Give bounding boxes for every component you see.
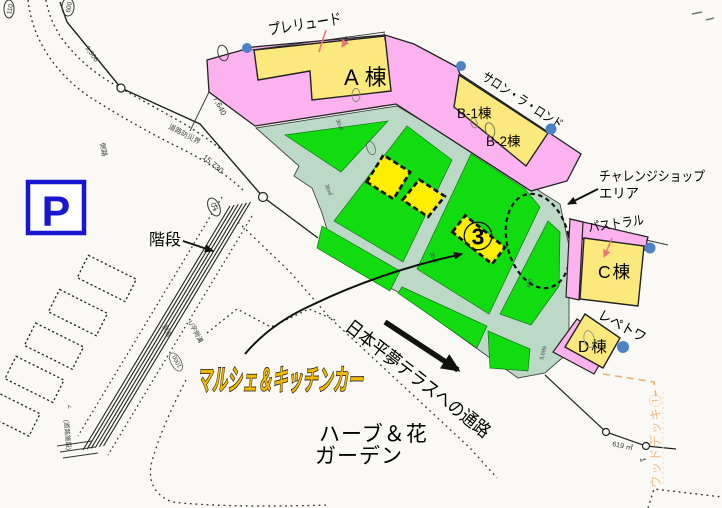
svg-text:C棟: C棟: [598, 262, 632, 282]
svg-text:ガーデン: ガーデン: [315, 445, 403, 468]
svg-text:P: P: [42, 188, 71, 236]
svg-text:チャレンジショップ: チャレンジショップ: [599, 169, 705, 184]
svg-text:A棟: A棟: [344, 65, 393, 90]
svg-text:D棟: D棟: [578, 338, 609, 356]
svg-text:マルシェ＆キッチンカー: マルシェ＆キッチンカー: [197, 365, 364, 397]
svg-text:3: 3: [472, 224, 485, 250]
svg-text:ウッドデッキ①: ウッドデッキ①: [648, 393, 663, 488]
svg-text:エリア: エリア: [599, 186, 639, 201]
svg-text:ハーブ＆花: ハーブ＆花: [319, 423, 428, 446]
svg-text:階段: 階段: [149, 231, 181, 249]
svg-text:B-2棟: B-2棟: [486, 134, 521, 149]
